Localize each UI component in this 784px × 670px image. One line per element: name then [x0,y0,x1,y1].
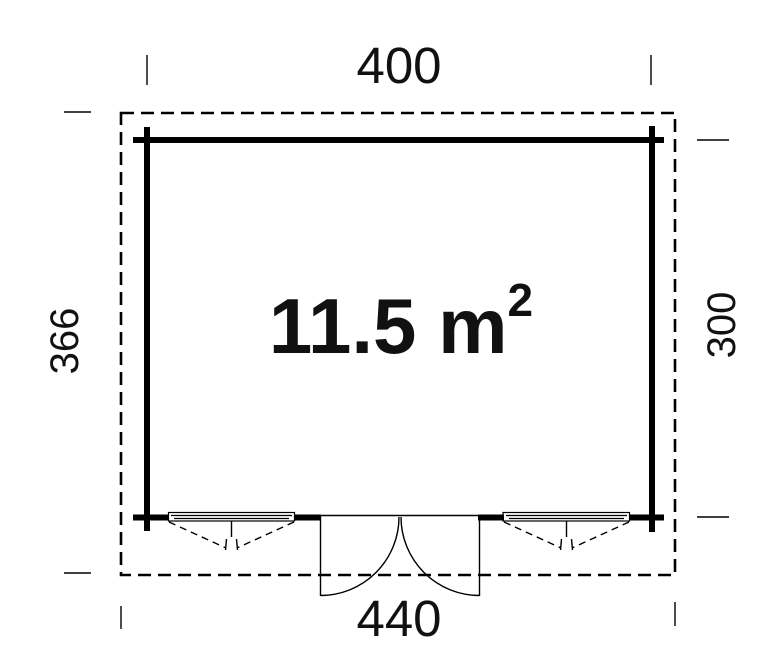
bottom-center-double-door [321,516,480,597]
window-swing-dash-right [237,522,294,548]
area-value: 11.5 m [269,282,508,370]
window-frame [503,513,630,522]
bottom-right-window [503,513,630,551]
window-swing-apex-mark [237,539,238,550]
bottom-left-window [169,513,295,551]
dimension-bottom-label: 440 [356,590,441,647]
dimension-right-label: 300 [700,292,744,359]
door-swing-arc-left [321,517,400,596]
floor-plan-page: 400 366 300 440 11.5 m2 [0,0,784,670]
window-frame [169,513,295,522]
area-exponent: 2 [507,274,533,326]
window-swing-apex-mark [572,539,573,550]
window-swing-apex-mark [561,539,562,550]
area-label: 11.5 m2 [269,274,533,370]
window-swing-apex-mark [226,539,227,550]
window-swing-dash-right [572,522,629,548]
window-swing-dash-left [504,522,561,548]
dimension-top-label: 400 [356,37,441,94]
dimension-left-label: 366 [43,308,87,375]
door-swing-arc-right [401,517,480,596]
window-swing-dash-left [169,522,226,548]
floor-plan-drawing: 400 366 300 440 11.5 m2 [0,0,784,670]
